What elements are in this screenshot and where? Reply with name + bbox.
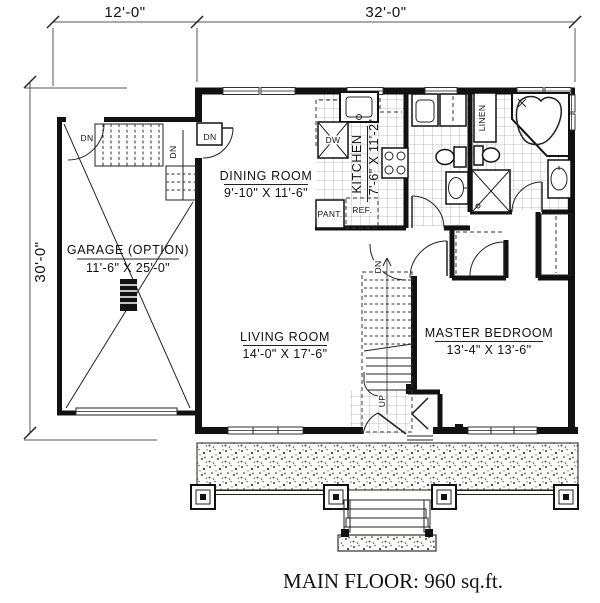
walk-in-closet <box>456 232 504 276</box>
dining-room-size: 9'-10" X 11'-6" <box>224 186 308 200</box>
closet-door-swing <box>470 242 504 276</box>
hall-door-swing <box>410 241 447 278</box>
garage-room-name: GARAGE (OPTION) <box>67 243 189 257</box>
dimension-garage-width: 12'-0" <box>104 4 145 21</box>
linen-closet: LINEN <box>474 93 496 142</box>
dining-room-name: DINING ROOM <box>220 169 313 183</box>
living-room-name: LIVING ROOM <box>240 330 330 344</box>
refrigerator-label: REF. <box>352 205 372 215</box>
ensuite-sink <box>548 160 571 198</box>
garage-side-door-down-label: DN <box>81 133 94 143</box>
garage: DN DN GARAGE (OPTION) 11'-6" X 25'-0" <box>57 117 201 416</box>
porch-floor <box>197 443 578 490</box>
master-bedroom-size: 13'-4" X 13'-6" <box>447 343 532 357</box>
foyer-closet-bifold <box>412 398 428 429</box>
master-closet <box>541 214 571 275</box>
front-steps <box>338 500 436 551</box>
dimension-house-width: 32'-0" <box>365 4 406 21</box>
kitchen-room-size: 7'-6" X 11'-2" <box>367 119 381 196</box>
plan-caption: MAIN FLOOR: 960 sq.ft. <box>283 569 503 593</box>
living-room: LIVING ROOM 14'-0" X 17'-6" <box>240 330 330 361</box>
garage-stairs <box>95 124 197 200</box>
porch <box>191 485 578 551</box>
dining-entry-door: DN <box>197 123 233 158</box>
dishwasher: DW <box>318 122 348 158</box>
shower <box>472 170 510 212</box>
pantry-label: PANT. <box>318 209 343 219</box>
stove <box>382 148 408 178</box>
dishwasher-label: DW <box>326 135 341 145</box>
floor-plan-drawing: 12'-0" 32'-0" 30'-0" <box>0 0 600 603</box>
floor-plan-page: 12'-0" 32'-0" 30'-0" <box>0 0 600 603</box>
bathroom-sink <box>446 172 468 204</box>
dimension-house-depth: 30'-0" <box>32 241 49 282</box>
living-room-window <box>228 427 303 434</box>
dining-window <box>223 88 295 95</box>
dining-entry-down-label: DN <box>204 132 217 142</box>
kitchen-room-name: KITCHEN <box>350 134 364 193</box>
living-room-size: 14'-0" X 17'-6" <box>243 347 328 361</box>
dryer <box>440 94 466 126</box>
stair-up-label: UP <box>377 395 387 407</box>
master-bedroom-window <box>468 427 537 434</box>
garage-room-size: 11'-6" X 25'-0" <box>86 261 170 275</box>
pantry: PANT. <box>316 200 344 228</box>
garage-post <box>120 279 137 311</box>
washer <box>412 94 438 126</box>
linen-label: LINEN <box>477 105 487 132</box>
dining-room: DN DINING ROOM 9'-10" X 11'-6" <box>197 123 312 200</box>
stair-down-label: DN <box>373 261 383 274</box>
master-bedroom-name: MASTER BEDROOM <box>425 326 554 340</box>
master-bedroom: MASTER BEDROOM 13'-4" X 13'-6" <box>425 326 554 357</box>
kitchen-sink <box>340 92 378 122</box>
garage-stair-down-label: DN <box>168 146 178 159</box>
